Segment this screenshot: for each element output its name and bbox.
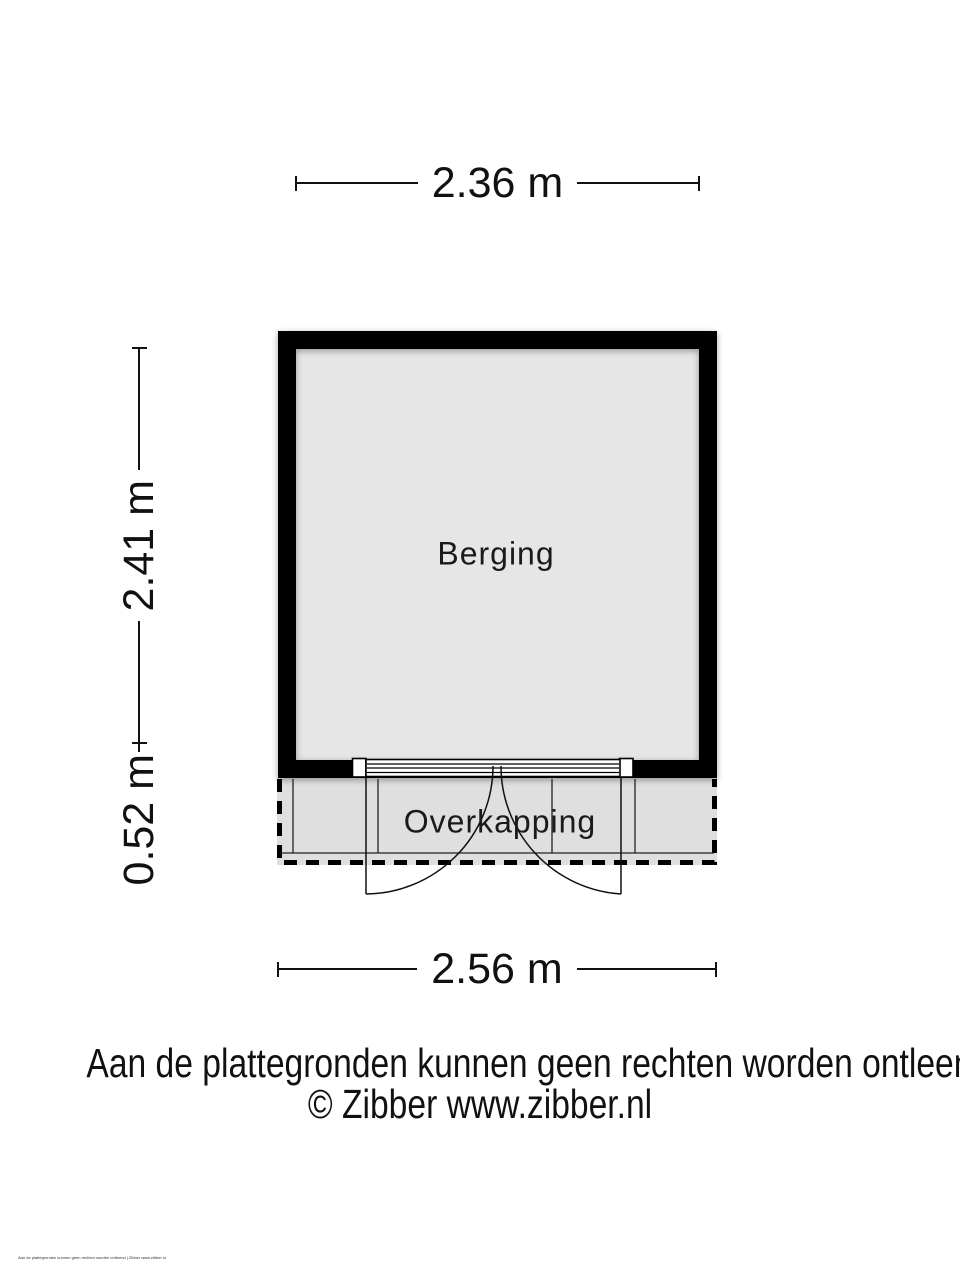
disclaimer-text: Aan de plattegronden kunnen geen rechten… [86, 1040, 873, 1087]
dimension-line [138, 621, 140, 742]
floorplan-page: { "floorplan": { "room_label": "Berging"… [0, 0, 960, 1280]
credit-text: © Zibber www.zibber.nl [86, 1081, 873, 1128]
dimension-left: 2.41 m [129, 347, 149, 744]
dimension-line [577, 968, 715, 970]
door-frame-right [620, 759, 634, 778]
dimension-bottom-label: 2.56 m [431, 948, 562, 991]
door-frame-left [353, 759, 367, 778]
dimension-tick [698, 176, 700, 191]
dimension-line [297, 182, 418, 184]
dimension-canopy-label: 0.52 m [118, 754, 161, 885]
dimension-canopy: 0.52 m [129, 744, 149, 894]
dimension-top: 2.36 m [295, 161, 700, 205]
dimension-bottom: 2.56 m [277, 947, 717, 991]
fineprint-text: Aan de plattegronden kunnen geen rechten… [18, 1255, 166, 1260]
dimension-line [138, 349, 140, 470]
dimension-line [138, 744, 140, 752]
dimension-line [577, 182, 698, 184]
room-label-overkapping: Overkapping [404, 804, 596, 841]
dimension-line [279, 968, 417, 970]
dimension-tick [715, 962, 717, 977]
dimension-left-label: 2.41 m [118, 480, 161, 611]
dimension-top-label: 2.36 m [432, 162, 563, 205]
room-label-berging: Berging [437, 536, 554, 573]
